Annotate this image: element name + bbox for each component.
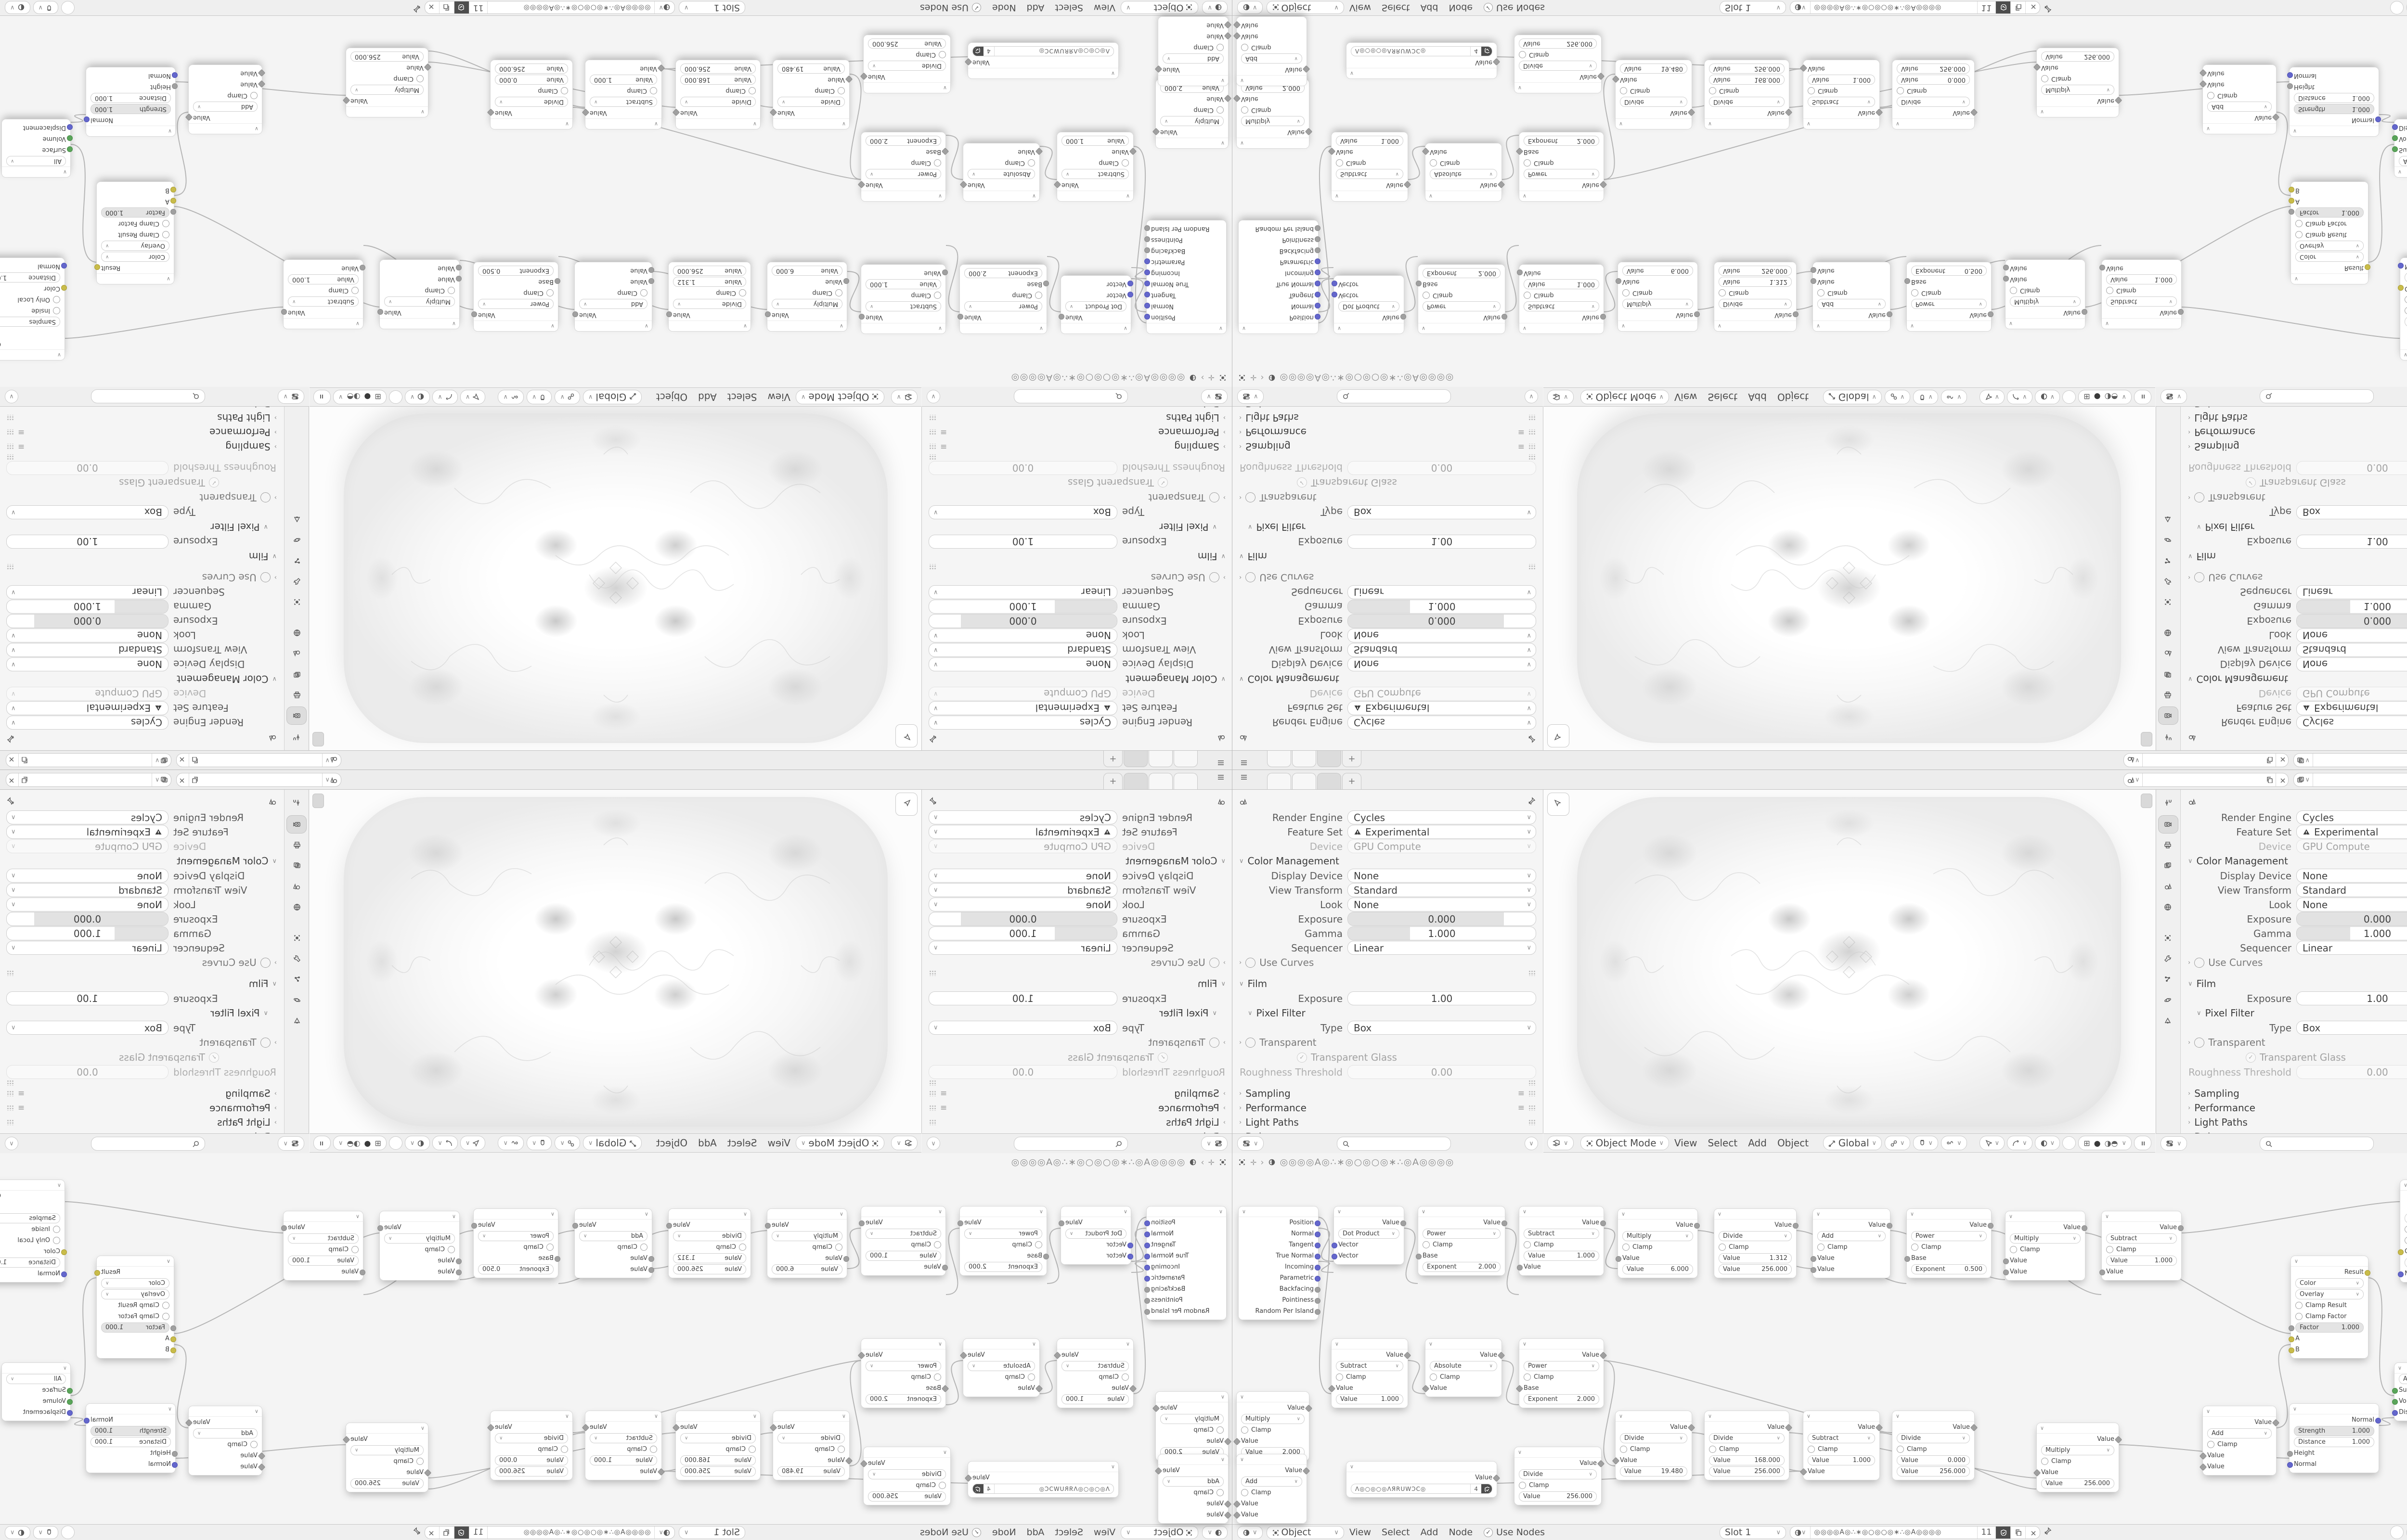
checkbox[interactable] — [260, 1038, 271, 1048]
checkbox[interactable] — [1209, 493, 1219, 503]
overlays-toggle[interactable]: ∨ — [405, 390, 430, 404]
panel-options[interactable]: ≡ — [929, 442, 947, 451]
subpanel-transparent[interactable]: ›Transparent — [929, 1035, 1226, 1050]
overlays-toggle[interactable]: ∨ — [405, 1136, 430, 1150]
material-user-count[interactable]: 11 — [1978, 1527, 1996, 1539]
pin-icon[interactable] — [929, 797, 937, 807]
node-enum-dropdown[interactable]: Dot Product∨ — [1338, 1229, 1399, 1239]
node-header[interactable]: ∨ — [97, 273, 174, 284]
node-header[interactable]: ∨ — [963, 1339, 1039, 1349]
editor-type-properties[interactable]: ∨ — [1201, 389, 1228, 404]
node-number-field[interactable]: Value6.000 — [772, 1264, 842, 1274]
node-enum-dropdown[interactable]: Add∨ — [1163, 1476, 1224, 1487]
node-checkbox-clamp[interactable]: Clamp — [1332, 157, 1408, 168]
collapsed-panel-sampling[interactable]: ›Sampling≡ — [2188, 1086, 2407, 1101]
shading-mode-cluster[interactable]: ⊞●◑◓∨ — [333, 390, 387, 404]
pin-icon[interactable] — [6, 733, 14, 744]
viewport-menu-select[interactable]: Select — [1708, 391, 1738, 403]
panel-header-color-management[interactable]: ∨Color Management — [929, 854, 1226, 868]
node-enum-dropdown[interactable]: Subtract∨ — [288, 296, 359, 307]
panel-options[interactable]: ≡ — [1518, 1103, 1536, 1113]
node-header[interactable]: ∨ — [1519, 1206, 1604, 1217]
node-header[interactable]: ∨ — [1156, 138, 1228, 148]
node-header[interactable]: ∨ — [474, 1209, 558, 1219]
material-name-field[interactable]: ◎◎◎◎A◎∴∗◎○◎○◎∗∴◎A◎◎◎◎ — [487, 2, 654, 14]
panel-header-color-management[interactable]: ∨Color Management — [1239, 854, 1536, 868]
node-enum-dropdown[interactable]: Absolute∨ — [1430, 1361, 1497, 1371]
panel-options[interactable]: ≡ — [929, 427, 947, 437]
node-enum-dropdown[interactable]: Add∨ — [579, 1231, 647, 1241]
prop-slider[interactable]: 1.00 — [6, 535, 168, 549]
editor-type-shader[interactable]: ∨ — [1202, 1, 1228, 14]
node-enum-dropdown[interactable]: Divide∨ — [868, 61, 946, 71]
subpanel-transparent[interactable]: ›Transparent — [2188, 1035, 2407, 1050]
scene-copy-icon[interactable] — [2263, 773, 2276, 786]
material-name-field[interactable]: ◎◎◎◎A◎∴∗◎○◎○◎∗∴◎A◎◎◎◎ — [487, 1527, 654, 1539]
node[interactable]: ∨ValueAbsolute∨ClampValue — [963, 1338, 1040, 1397]
node[interactable]: ∨All∨SurfaceVolumeDisplacement — [1, 119, 71, 178]
material-browse-icon[interactable]: ∨ — [654, 2, 674, 14]
gizmo-toggle[interactable]: ∨ — [460, 390, 486, 404]
node[interactable]: ∨ValueΛ◎○◎○◎ΛЯRUWƆC◎4 — [1346, 1461, 1497, 1498]
node-enum-dropdown[interactable]: Subtract∨ — [866, 301, 941, 311]
node-enum-dropdown[interactable]: Power∨ — [478, 1231, 554, 1241]
fake-user-shield-icon[interactable] — [454, 2, 469, 14]
properties-tab-output[interactable] — [2159, 686, 2178, 703]
node-header[interactable]: ∨ — [1514, 82, 1601, 93]
socket-in[interactable] — [2287, 84, 2293, 90]
socket-out[interactable] — [1988, 1223, 1993, 1229]
node-checkbox-inside[interactable]: Inside — [0, 1224, 65, 1235]
socket-out[interactable] — [2178, 1225, 2184, 1231]
pivot-point-button[interactable]: ∨ — [1885, 1136, 1910, 1150]
node-number-field[interactable]: Distance1.000 — [2294, 1437, 2374, 1447]
node[interactable]: ∨ValueDivide∨ClampValue256.000 — [1514, 35, 1602, 93]
prop-dropdown[interactable]: None∨ — [6, 898, 168, 911]
node-menu-select[interactable]: Select — [1055, 2, 1083, 13]
socket-in[interactable] — [2003, 276, 2009, 282]
annotation-dropdown[interactable]: ∨ — [432, 1136, 458, 1150]
node[interactable]: ∨ValuePower∨ClampBaseExponent0.500 — [473, 262, 558, 332]
annotation-dropdown[interactable]: ∨ — [2007, 390, 2032, 404]
node-number-field[interactable]: Value256.000 — [868, 38, 946, 49]
material-slot-selector[interactable]: Slot 1∨ — [679, 1, 745, 14]
prop-slider[interactable]: 1.000 — [2296, 600, 2407, 614]
node-checkbox-clamp[interactable]: Clamp — [585, 1444, 661, 1455]
node-enum-dropdown[interactable]: Multiply∨ — [772, 1231, 842, 1241]
node-checkbox-clamp[interactable]: Clamp — [346, 1456, 428, 1467]
node-number-field[interactable]: Value1.000 — [866, 279, 941, 289]
socket-in[interactable] — [2289, 1347, 2294, 1353]
material-slot-selector[interactable]: Slot 1∨ — [679, 1526, 745, 1539]
prop-slider[interactable]: 0.00 — [929, 461, 1117, 475]
pin-icon[interactable] — [1528, 733, 1536, 744]
node[interactable]: ∨ValuePower∨ClampBaseExponent0.500 — [1906, 1208, 1992, 1278]
node-enum-dropdown[interactable]: Multiply∨ — [1160, 1414, 1224, 1424]
node-header[interactable]: ∨ — [1237, 1392, 1309, 1402]
material-user-count[interactable]: 11 — [1978, 2, 1996, 14]
prop-slider[interactable]: 0.00 — [1347, 461, 1536, 475]
node-checkbox-clamp[interactable]: Clamp — [1907, 287, 1991, 298]
fractal-object[interactable] — [344, 797, 888, 1127]
editor-type-properties[interactable]: ∨ — [2161, 389, 2187, 404]
socket-out[interactable] — [1144, 303, 1150, 309]
node[interactable]: ∨ValueDivide∨ClampValue0.000Value256.000 — [490, 1411, 573, 1480]
subpanel-use-curves[interactable]: ›Use Curves — [929, 955, 1226, 970]
node-header[interactable]: ∨ — [1714, 1209, 1796, 1219]
node-enum-dropdown[interactable]: Divide∨ — [495, 97, 568, 107]
node-number-field[interactable]: Value168.000 — [680, 1455, 756, 1465]
node-header[interactable]: ∨ — [861, 1339, 945, 1349]
socket-out[interactable] — [1315, 1298, 1320, 1304]
properties-search-input[interactable] — [91, 390, 205, 404]
node-number-field[interactable]: Strength1.000 — [91, 1426, 171, 1436]
properties-tab-viewlayer[interactable] — [2159, 665, 2178, 682]
socket-in[interactable] — [2287, 1462, 2293, 1468]
socket-in[interactable] — [2398, 263, 2404, 269]
node[interactable]: ∨All∨SurfaceVolumeDisplacement — [2394, 119, 2407, 178]
socket-out[interactable] — [1144, 259, 1150, 265]
node-header[interactable]: ∨ — [1907, 1209, 1991, 1219]
prop-dropdown[interactable]: Cycles∨ — [929, 810, 1117, 824]
prop-dropdown[interactable]: None∨ — [6, 657, 168, 671]
node-checkbox-clamp[interactable]: Clamp — [2037, 1456, 2119, 1467]
socket-out[interactable] — [859, 314, 865, 320]
node-number-field[interactable]: Value1.000 — [288, 274, 359, 284]
node-enum-dropdown[interactable]: Divide∨ — [1709, 97, 1785, 107]
socket-out[interactable] — [666, 312, 672, 318]
node-number-field[interactable]: Value6.000 — [1622, 266, 1693, 276]
viewport-3d[interactable] — [310, 790, 921, 1133]
node[interactable]: ∨ValueMultiply∨ClampValueValue2.000 — [1155, 79, 1229, 149]
properties-tab-render[interactable] — [286, 815, 307, 834]
socket-out[interactable] — [1501, 1220, 1507, 1226]
node[interactable]: ∨ValueAdd∨ClampValueValue — [574, 262, 652, 332]
prop-dropdown[interactable]: Experimental∨ — [1347, 701, 1536, 715]
node-number-field[interactable]: Value1.312 — [1719, 1253, 1792, 1263]
node-enum-dropdown[interactable]: Power∨ — [1524, 169, 1599, 179]
node-checkbox-clamp[interactable]: Clamp — [1519, 1372, 1604, 1383]
checkbox[interactable] — [2194, 573, 2204, 583]
node-header[interactable]: ∨ — [1239, 1206, 1318, 1217]
collapsed-panel-debug[interactable]: ›Debug — [929, 407, 1226, 411]
node-number-field[interactable]: Value168.000 — [1709, 75, 1785, 85]
scene-name-field[interactable] — [202, 754, 322, 767]
socket-in[interactable] — [61, 1271, 67, 1277]
node[interactable]: ∨ValueDivide∨ClampValueValue19.480 — [773, 1411, 850, 1480]
prop-dropdown[interactable]: Experimental∨ — [929, 701, 1117, 715]
node-number-field[interactable]: Exponent2.000 — [1524, 136, 1599, 146]
shader-type-selector[interactable]: Object∨ — [1121, 1526, 1198, 1539]
node-enum-dropdown[interactable]: Add∨ — [193, 1428, 258, 1438]
node-number-field[interactable]: Value6.000 — [772, 266, 842, 276]
prop-dropdown[interactable]: Standard∨ — [1347, 883, 1536, 897]
node-enum-dropdown[interactable]: Subtract∨ — [590, 97, 657, 107]
properties-tab-scene[interactable] — [287, 644, 306, 662]
node-checkbox-clamp[interactable]: Clamp — [1519, 290, 1604, 301]
properties-tab-object[interactable] — [2159, 593, 2178, 610]
workspace-tab[interactable] — [1292, 773, 1316, 789]
node-number-field[interactable]: Value256.000 — [1897, 1466, 1970, 1476]
checkbox[interactable] — [1209, 958, 1219, 968]
annotation-dropdown[interactable]: ∨ — [2007, 1136, 2032, 1150]
node-number-field[interactable]: Exponent2.000 — [866, 136, 941, 146]
checkbox-transparent-glass[interactable]: ✓Transparent Glass — [1239, 1050, 1536, 1065]
node[interactable]: ∨ValueMultiply∨ClampValueValue — [2005, 1211, 2085, 1281]
prop-dropdown[interactable]: Box∨ — [929, 1021, 1117, 1035]
properties-tab-output[interactable] — [287, 686, 306, 703]
node-number-field[interactable]: Exponent2.000 — [866, 1394, 941, 1404]
subpanel-transparent[interactable]: ›Transparent — [1239, 1035, 1536, 1050]
prop-slider[interactable]: 1.000 — [1347, 926, 1536, 940]
group-datablock-selector[interactable]: Λ◎○◎○◎ΛЯRUWƆC◎4 — [1351, 1484, 1492, 1494]
node-number-field[interactable]: Samples5 — [2405, 1213, 2407, 1223]
node-menu-add[interactable]: Add — [1421, 2, 1438, 13]
workspace-tab-active[interactable] — [1124, 751, 1148, 767]
node-header[interactable]: ∨ — [1907, 321, 1991, 331]
prop-dropdown[interactable]: Experimental∨ — [1347, 825, 1536, 839]
scene-unlink-icon[interactable] — [2276, 754, 2288, 767]
collapsed-panel-performance[interactable]: ›Performance≡ — [2188, 425, 2407, 439]
active-tool-button[interactable] — [895, 724, 918, 747]
node-checkbox-clamp[interactable]: Clamp — [1418, 290, 1505, 301]
node-checkbox-clamp[interactable]: Clamp — [2006, 1244, 2085, 1255]
group-user-count[interactable]: 4 — [1470, 47, 1481, 56]
node[interactable]: ∨ColorAOSamples5InsideOnly LocalColorDis… — [0, 1180, 65, 1283]
socket-out[interactable] — [765, 312, 771, 318]
node[interactable]: ∨ValueAdd∨ClampValueValue — [188, 64, 262, 134]
node-enum-dropdown[interactable]: All∨ — [6, 1374, 66, 1384]
view-layer-unlink-icon[interactable] — [6, 754, 18, 767]
node-checkbox-clamp[interactable]: Clamp — [963, 1372, 1039, 1383]
panel-options[interactable]: ≡ — [6, 1103, 25, 1113]
node[interactable]: ∨ValueAdd∨ClampValueValue — [1158, 1454, 1229, 1524]
material-copy-icon[interactable] — [439, 2, 454, 14]
node-checkbox-clamp[interactable]: Clamp — [491, 1444, 572, 1455]
node-enum-dropdown[interactable]: Absolute∨ — [968, 169, 1035, 179]
prop-slider[interactable]: 0.000 — [929, 912, 1117, 926]
socket-out[interactable] — [1144, 226, 1150, 231]
node-header[interactable]: ∨ — [2291, 1256, 2368, 1267]
node-checkbox-clamp[interactable]: Clamp — [1813, 287, 1890, 298]
overlays-toggle[interactable]: ∨ — [2035, 1136, 2060, 1150]
node-header[interactable]: ∨ — [491, 1411, 572, 1422]
node[interactable]: ∨ValueMultiply∨ClampValueValue256.000 — [2036, 48, 2119, 117]
node[interactable]: ∨ValueMultiply∨ClampValueValue — [379, 1211, 460, 1281]
view-layer-browse-icon[interactable]: ∨ — [2294, 773, 2313, 786]
node[interactable]: ∨ValueAdd∨ClampValueValue — [1812, 262, 1890, 332]
properties-search-input[interactable] — [91, 1137, 205, 1151]
checkbox[interactable] — [2194, 1038, 2204, 1048]
node[interactable]: ∨ValueDot Product∨VectorVector — [1061, 275, 1131, 334]
node-checkbox-clamp-result[interactable]: Clamp Result — [97, 229, 174, 240]
use-nodes-checkbox[interactable]: ✓Use Nodes — [920, 1527, 981, 1538]
fractal-object[interactable] — [1577, 797, 2121, 1127]
scene-browse-icon[interactable]: ∨ — [2124, 773, 2143, 786]
editor-type-viewport[interactable]: ∨ — [1547, 390, 1574, 404]
node-header[interactable]: ∨ — [97, 1256, 174, 1267]
panel-options[interactable]: ≡ — [6, 427, 25, 437]
node-checkbox-clamp[interactable]: Clamp — [2006, 285, 2085, 296]
material-datablock-selector[interactable]: ∨ ◎◎◎◎A◎∴∗◎○◎○◎∗∴◎A◎◎◎◎ 11 — [425, 1, 675, 14]
node-enum-dropdown[interactable]: Divide∨ — [495, 1433, 568, 1443]
active-tool-button[interactable] — [1547, 793, 1569, 816]
pin-icon[interactable] — [6, 797, 14, 807]
scene-browse-icon[interactable]: ∨ — [322, 754, 341, 767]
add-workspace-button[interactable]: + — [1103, 773, 1123, 789]
node-proportional-toggle[interactable] — [61, 1526, 75, 1539]
node-header[interactable]: ∨ — [1618, 1209, 1697, 1219]
properties-tab-tool[interactable] — [287, 728, 306, 745]
socket-in[interactable] — [2003, 1258, 2009, 1264]
node[interactable]: ∨ValueDivide∨ClampValueValue19.480 — [773, 60, 850, 129]
proportional-editing-button[interactable]: ∨ — [1941, 1136, 1967, 1150]
socket-in[interactable] — [2289, 198, 2294, 204]
viewport-menu-object[interactable]: Object — [656, 391, 687, 403]
node-checkbox-clamp[interactable]: Clamp — [861, 157, 945, 168]
node-menu-select[interactable]: Select — [1382, 2, 1410, 13]
properties-search-input[interactable] — [1014, 390, 1128, 404]
node-enum-dropdown[interactable]: Subtract∨ — [1808, 97, 1875, 107]
node-snapping-button[interactable]: ∨ — [33, 1, 59, 14]
node-number-field[interactable]: Value256.000 — [1719, 1264, 1792, 1274]
node-checkbox-clamp[interactable]: Clamp — [380, 1244, 459, 1255]
socket-in[interactable] — [1811, 1267, 1816, 1273]
properties-tab-modifier[interactable] — [2159, 572, 2178, 590]
add-workspace-button[interactable]: + — [1103, 751, 1123, 767]
node-number-field[interactable]: Value1.000 — [1061, 136, 1129, 146]
checkbox[interactable] — [1209, 573, 1219, 583]
panel-header-color-management[interactable]: ∨Color Management — [929, 672, 1226, 686]
group-datablock-selector[interactable]: Λ◎○◎○◎ΛЯRUWƆC◎4 — [972, 46, 1114, 56]
node-enum-dropdown[interactable]: Power∨ — [478, 299, 554, 309]
properties-tab-viewlayer[interactable] — [287, 665, 306, 682]
node-enum-dropdown[interactable]: Add∨ — [193, 102, 258, 112]
node-checkbox-clamp[interactable]: Clamp — [1237, 1487, 1307, 1498]
socket-out[interactable] — [859, 1220, 865, 1226]
prop-dropdown[interactable]: Standard∨ — [6, 643, 168, 657]
gizmo-toggle[interactable]: ∨ — [1980, 1136, 2005, 1150]
xray-toggle[interactable] — [2062, 390, 2076, 404]
node-number-field[interactable]: Value256.000 — [2041, 1478, 2114, 1489]
prop-slider[interactable]: 1.00 — [1347, 535, 1536, 549]
panel-options[interactable] — [6, 1119, 14, 1125]
node-header[interactable]: ∨ — [2, 167, 70, 177]
node-header[interactable]: ∨ — [585, 118, 661, 129]
node-checkbox-clamp[interactable]: Clamp — [1418, 1239, 1505, 1250]
editor-type-shader[interactable]: ∨ — [1202, 1526, 1228, 1539]
socket-out[interactable] — [1144, 1298, 1150, 1304]
panel-header-film[interactable]: ∨Film — [1239, 549, 1536, 564]
subpanel-use-curves[interactable]: ›Use Curves — [6, 955, 277, 970]
socket-out[interactable] — [281, 1225, 287, 1231]
node-number-field[interactable]: Exponent2.000 — [964, 268, 1042, 278]
node-checkbox-clamp[interactable]: Clamp — [2102, 285, 2181, 296]
socket-in[interactable] — [2392, 1388, 2398, 1394]
editor-type-properties[interactable]: ∨ — [278, 389, 304, 404]
node-number-field[interactable]: Factor1.000 — [2295, 207, 2364, 218]
node-header[interactable]: ∨ — [1346, 68, 1497, 78]
socket-in[interactable] — [2003, 1270, 2009, 1275]
node-number-field[interactable]: Value256.000 — [350, 1478, 424, 1489]
prop-dropdown[interactable]: GPU Compute∨ — [6, 839, 168, 853]
socket-in[interactable] — [1811, 1256, 1816, 1262]
scene-browse-icon[interactable]: ∨ — [2124, 754, 2143, 767]
material-slot-selector[interactable]: Slot 1∨ — [1720, 1526, 1786, 1539]
node-header[interactable]: ∨ — [0, 349, 65, 360]
socket-in[interactable] — [2287, 73, 2293, 78]
socket-in[interactable] — [1517, 270, 1523, 276]
collapsed-panel-performance[interactable]: ›Performance≡ — [2188, 1101, 2407, 1115]
node-header[interactable]: ∨ — [346, 1423, 428, 1434]
node-menu-add[interactable]: Add — [1027, 1527, 1045, 1538]
node[interactable]: ∨ValueDivide∨ClampValue168.000Value256.0… — [1704, 1411, 1789, 1480]
subpanel-transparent[interactable]: ›Transparent — [6, 490, 277, 505]
socket-in[interactable] — [170, 1336, 176, 1342]
shader-editor[interactable]: ✛ › ◎◎◎◎A◎∴∗◎○◎○◎∗∴◎A◎◎◎◎ ∨PositionNorma… — [1232, 1153, 2407, 1540]
collapsed-panel-performance[interactable]: ›Performance≡ — [1239, 1101, 1536, 1115]
node[interactable]: ∨All∨SurfaceVolumeDisplacement — [1, 1362, 71, 1421]
node-enum-dropdown[interactable]: Multiply∨ — [1622, 299, 1693, 309]
node-menu-select[interactable]: Select — [1382, 1527, 1410, 1538]
prop-dropdown[interactable]: None∨ — [2296, 898, 2407, 911]
node[interactable]: ∨NormalStrength1.000Distance1.000HeightN… — [86, 67, 176, 137]
node-checkbox-inside[interactable]: Inside — [2400, 305, 2407, 316]
checkbox-transparent-glass[interactable]: ✓Transparent Glass — [1239, 475, 1536, 490]
node-header[interactable]: ∨ — [2291, 273, 2368, 284]
node-checkbox-clamp-factor[interactable]: Clamp Factor — [2291, 218, 2368, 229]
node-checkbox-clamp[interactable]: Clamp — [284, 1244, 363, 1255]
node-header[interactable]: ∨ — [1803, 1411, 1879, 1422]
node-number-field[interactable]: Value256.000 — [1709, 64, 1785, 74]
prop-dropdown[interactable]: Cycles∨ — [6, 716, 168, 730]
socket-in[interactable] — [555, 1256, 560, 1262]
node-header[interactable]: ∨ — [1519, 1339, 1604, 1349]
node-checkbox-clamp[interactable]: Clamp — [1057, 157, 1133, 168]
node-number-field[interactable]: Strength1.000 — [2294, 1426, 2374, 1436]
group-name-field[interactable]: Λ◎○◎○◎ΛЯRUWƆC◎ — [1351, 1484, 1470, 1493]
node-enum-dropdown[interactable]: Color∨ — [101, 1278, 169, 1288]
node-header[interactable]: ∨ — [474, 321, 558, 331]
node-header[interactable]: ∨ — [2394, 1363, 2407, 1373]
node[interactable]: ∨All∨SurfaceVolumeDisplacement — [2394, 1362, 2407, 1421]
node[interactable]: ∨NormalStrength1.000Distance1.000HeightN… — [86, 1403, 176, 1473]
node-number-field[interactable]: Value19.480 — [777, 1466, 845, 1476]
collapsed-panel-sampling[interactable]: ›Sampling≡ — [1239, 1086, 1536, 1101]
prop-slider[interactable]: 0.000 — [929, 614, 1117, 628]
viewport-menu-view[interactable]: View — [768, 1137, 790, 1149]
checkbox[interactable] — [1245, 958, 1255, 968]
prop-slider[interactable]: 0.00 — [2296, 461, 2407, 475]
view-layer-selector[interactable]: ∨ — [6, 773, 171, 787]
node-number-field[interactable]: Value256.000 — [495, 1466, 568, 1476]
node[interactable]: ∨ValueDivide∨ClampValue0.000Value256.000 — [1892, 60, 1975, 129]
socket-out[interactable] — [1315, 1287, 1320, 1293]
node-header[interactable]: ∨ — [491, 118, 572, 129]
node-checkbox-clamp[interactable]: Clamp — [1514, 1480, 1601, 1491]
transform-orientation[interactable]: Global∨ — [1823, 1136, 1882, 1150]
collapsed-panel-light-paths[interactable]: ›Light Paths — [1239, 411, 1536, 425]
node-header[interactable]: ∨ — [767, 1209, 847, 1219]
collapsed-panel-performance[interactable]: ›Performance≡ — [1239, 425, 1536, 439]
node[interactable]: ∨ColorAOSamples5InsideOnly LocalColorDis… — [2400, 257, 2407, 360]
properties-tab-physics[interactable] — [2159, 531, 2178, 548]
prop-dropdown[interactable]: Box∨ — [6, 505, 168, 519]
viewport-3d[interactable] — [1543, 407, 2155, 750]
material-copy-icon[interactable] — [2011, 2, 2026, 14]
socket-out[interactable] — [1059, 1220, 1064, 1226]
material-browse-icon[interactable]: ∨ — [1790, 2, 1811, 14]
